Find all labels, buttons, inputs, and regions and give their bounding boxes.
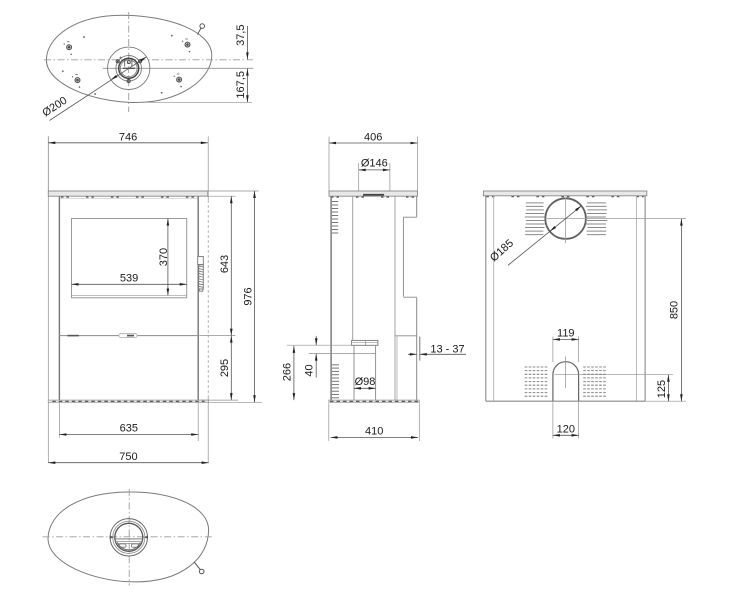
svg-text:125: 125	[656, 380, 668, 398]
svg-text:635: 635	[120, 423, 138, 435]
svg-text:410: 410	[365, 426, 383, 438]
svg-text:539: 539	[120, 273, 138, 285]
svg-text:750: 750	[119, 451, 137, 463]
svg-text:119: 119	[557, 328, 575, 340]
svg-text:37,5: 37,5	[235, 24, 247, 45]
svg-text:850: 850	[668, 301, 680, 319]
svg-text:406: 406	[364, 131, 382, 143]
svg-text:40: 40	[304, 364, 316, 376]
svg-text:746: 746	[119, 131, 137, 143]
svg-text:976: 976	[242, 287, 254, 305]
svg-text:120: 120	[557, 424, 575, 436]
svg-text:295: 295	[219, 359, 231, 377]
svg-text:370: 370	[158, 248, 170, 266]
svg-text:Ø98: Ø98	[355, 376, 376, 388]
svg-text:Ø146: Ø146	[361, 157, 388, 169]
svg-text:643: 643	[219, 255, 231, 273]
svg-text:266: 266	[281, 363, 293, 381]
svg-text:13 - 37: 13 - 37	[430, 343, 464, 355]
svg-text:167,5: 167,5	[235, 71, 247, 99]
